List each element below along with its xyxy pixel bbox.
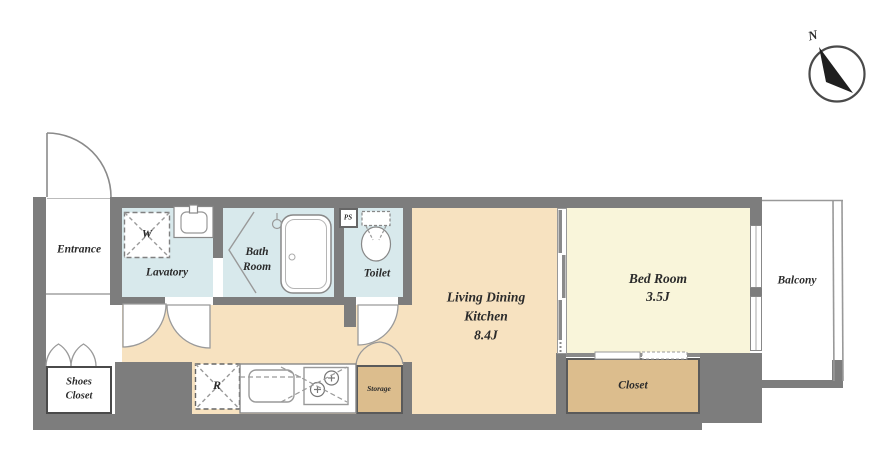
ps-label: PS [344, 213, 352, 222]
ldk-label: Living Dining Kitchen 8.4J [447, 289, 525, 346]
shoes-closet-label: Shoes Closet [66, 375, 93, 402]
window-bedroom-lower [750, 296, 762, 351]
floor-plan: N Entrance Lavatory W Bath Room Toilet P… [0, 0, 880, 454]
balcony-label: Balcony [778, 274, 817, 289]
bathroom-label: Bath Room [243, 245, 271, 275]
room-bathroom [223, 208, 334, 297]
wall-under-bath [213, 297, 356, 305]
toilet-label: Toilet [364, 267, 390, 282]
wall-lavatory-bath [213, 208, 223, 258]
partition-ldk-bedroom [557, 208, 567, 354]
window-bedroom-upper [750, 225, 762, 288]
wall-top [110, 197, 757, 208]
wall-bedroom-bottom [566, 353, 700, 357]
bedroom-label: Bed Room 3.5J [629, 270, 687, 306]
entrance-step-line [46, 293, 110, 295]
balcony-outline [762, 201, 843, 382]
wall-storage-right [403, 362, 412, 414]
room-lavatory [120, 208, 213, 297]
entrance-door-icon [47, 133, 111, 199]
wall-mass-kitchen-left [115, 362, 192, 430]
wall-bedroom-right-top [750, 197, 762, 225]
entrance-label: Entrance [57, 243, 101, 258]
wall-mass-bottom-right [700, 353, 762, 423]
room-entrance [46, 208, 110, 341]
wall-left [33, 197, 46, 430]
wall-balcony-bottom [758, 380, 843, 388]
wall-toilet-right [403, 208, 412, 305]
wall-closet-left [556, 353, 566, 414]
shoes-closet-bifold-icon [46, 344, 96, 366]
wall-toilet-bottom [398, 297, 412, 305]
closet-label: Closet [618, 379, 647, 394]
lavatory-label: Lavatory [146, 266, 188, 281]
wall-entrance-lavatory [110, 197, 122, 305]
washer-label: W [142, 228, 152, 243]
compass-icon [810, 47, 865, 102]
room-corridor [122, 305, 412, 363]
wall-balcony-post [832, 360, 843, 388]
wall-under-lavatory [110, 297, 165, 305]
storage-label: Storage [367, 384, 391, 394]
wall-window-tick [750, 288, 762, 296]
wall-niche-left [344, 305, 356, 327]
compass-north-label: N [806, 27, 819, 46]
refrigerator-label: R [213, 378, 221, 394]
